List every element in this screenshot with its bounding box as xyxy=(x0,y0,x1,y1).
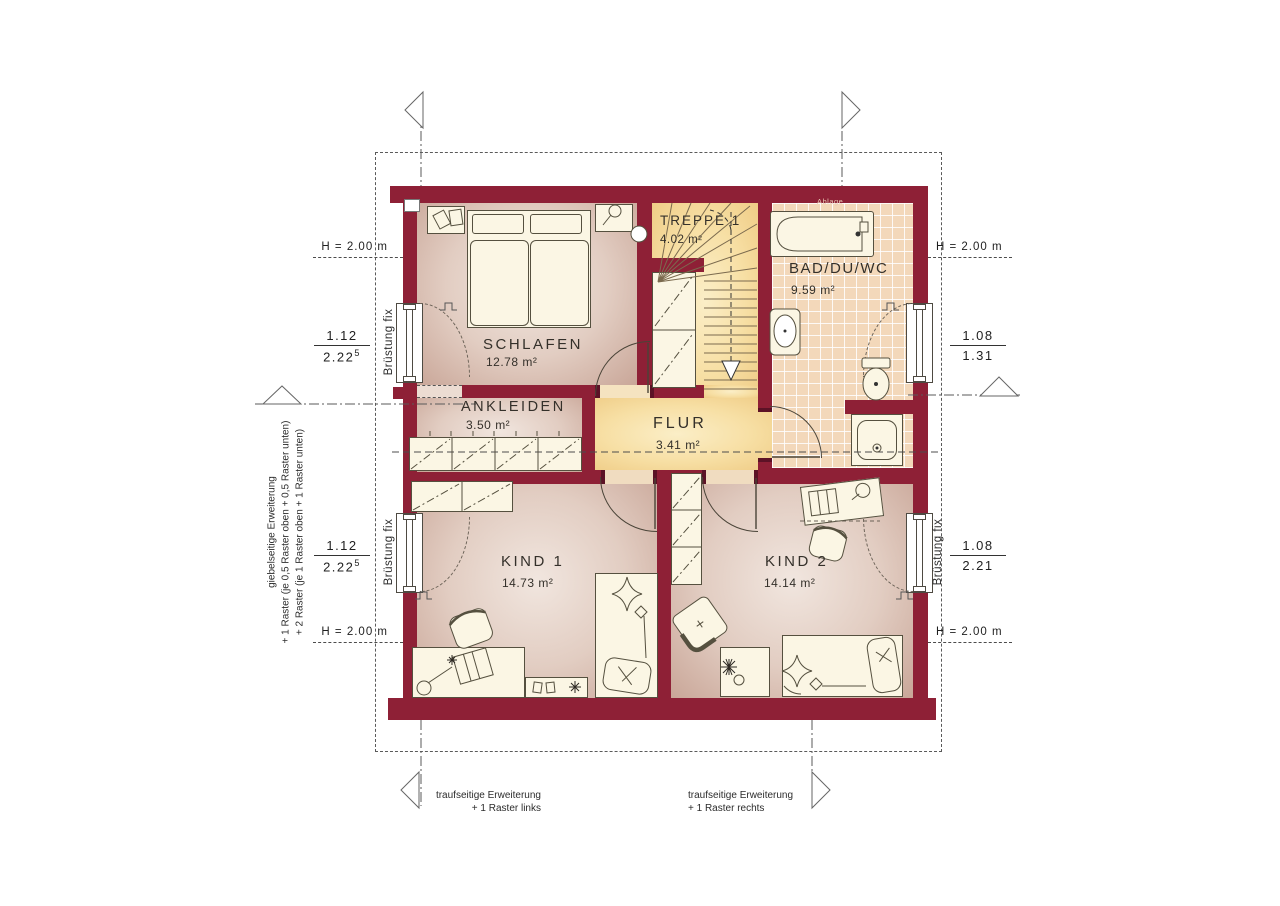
room-label-bad: BAD/DU/WC xyxy=(789,260,888,277)
shelf-label: Ablage xyxy=(817,197,843,206)
floor-plan-page: SCHLAFEN 12.78 m² ANKLEIDEN 3.50 m² TREP… xyxy=(0,0,1280,906)
wall-bottom xyxy=(388,698,936,720)
room-label-kind1: KIND 1 xyxy=(501,553,564,570)
window-dim-right-bottom: 1.08 2.21 xyxy=(950,538,1006,573)
room-area-treppe: 4.02 m² xyxy=(660,234,703,246)
bathtub xyxy=(770,211,874,257)
stair-entry-strip xyxy=(704,385,758,398)
bed-kind2 xyxy=(782,635,903,697)
gable-extension-note: giebelseitige Erweiterung + 1 Raster (je… xyxy=(266,420,308,645)
grid-triangle-bottom-left xyxy=(401,772,419,808)
wardrobe-ankleiden xyxy=(409,437,582,471)
grid-triangle-top-left xyxy=(405,92,423,128)
window-dim-left-top: 1.12 2.225 xyxy=(314,328,370,364)
bed-pillow xyxy=(530,214,582,234)
parapet-label-left-top: Brüstung fix xyxy=(383,302,395,382)
wall-flur-bottom-seg3 xyxy=(758,470,772,484)
parapet-label-right-bottom: Brüstung fix xyxy=(932,512,944,592)
room-label-treppe: TREPPE 1 xyxy=(660,213,741,228)
room-area-bad: 9.59 m² xyxy=(791,283,835,297)
room-label-flur: FLUR xyxy=(653,415,707,433)
height-label-bottom-left: H = 2.00 m xyxy=(308,626,388,638)
play-table-kind2 xyxy=(720,647,770,697)
window-kind1 xyxy=(396,513,423,593)
eaves-extension-left: traufseitige Erweiterung + 1 Raster link… xyxy=(421,789,541,815)
window-schlafen xyxy=(396,303,423,383)
room-area-kind1: 14.73 m² xyxy=(502,576,553,590)
bed-kind1 xyxy=(595,573,658,698)
height-label-bottom-right: H = 2.00 m xyxy=(936,626,1003,638)
wall-shower-stub xyxy=(845,400,913,414)
height-label-top-right: H = 2.00 m xyxy=(936,241,1003,253)
wall-left-pier xyxy=(393,387,403,399)
grid-triangle-top-right xyxy=(842,92,860,128)
room-flur-floor xyxy=(582,398,772,470)
grid-triangle-bottom-right xyxy=(812,772,830,808)
window-dim-right-top: 1.08 1.31 xyxy=(950,328,1006,363)
room-area-flur: 3.41 m² xyxy=(656,438,700,452)
bed-mattress xyxy=(530,240,589,326)
bed-pillow xyxy=(472,214,524,234)
nightstand xyxy=(427,206,465,234)
wall-top xyxy=(390,186,928,203)
wall-kind-partition xyxy=(657,484,671,698)
closet-under-stairs xyxy=(652,272,696,388)
duct-notch xyxy=(404,199,420,212)
height-line xyxy=(313,642,403,643)
small-box xyxy=(545,682,555,694)
height-label-top-left: H = 2.00 m xyxy=(308,241,388,253)
room-label-ankleiden: ANKLEIDEN xyxy=(461,399,566,415)
nightstand xyxy=(595,204,633,232)
opening-schlafen-ankleiden xyxy=(417,385,462,398)
desk-kind1 xyxy=(412,647,525,698)
room-label-schlafen: SCHLAFEN xyxy=(483,336,583,353)
height-line xyxy=(928,257,1012,258)
height-line xyxy=(928,642,1012,643)
parapet-label-left-bottom: Brüstung fix xyxy=(383,512,395,592)
wall-treppe-closet-stub xyxy=(652,258,704,272)
eaves-extension-right: traufseitige Erweiterung + 1 Raster rech… xyxy=(688,789,808,815)
window-dim-left-bottom: 1.12 2.225 xyxy=(314,538,370,574)
grid-triangle-mid-right xyxy=(980,377,1018,396)
wardrobe-kind1 xyxy=(411,481,513,512)
wall-right xyxy=(913,203,928,698)
small-box xyxy=(532,681,542,693)
room-area-ankleiden: 3.50 m² xyxy=(466,418,510,432)
shower-tray xyxy=(857,420,897,460)
height-line xyxy=(313,257,403,258)
wardrobe-kind2 xyxy=(671,473,702,585)
bed-mattress xyxy=(470,240,529,326)
door-jamb xyxy=(758,458,772,462)
room-area-kind2: 14.14 m² xyxy=(764,576,815,590)
grid-triangle-mid-left xyxy=(263,386,301,404)
room-area-schlafen: 12.78 m² xyxy=(486,355,537,369)
room-label-kind2: KIND 2 xyxy=(765,553,828,570)
